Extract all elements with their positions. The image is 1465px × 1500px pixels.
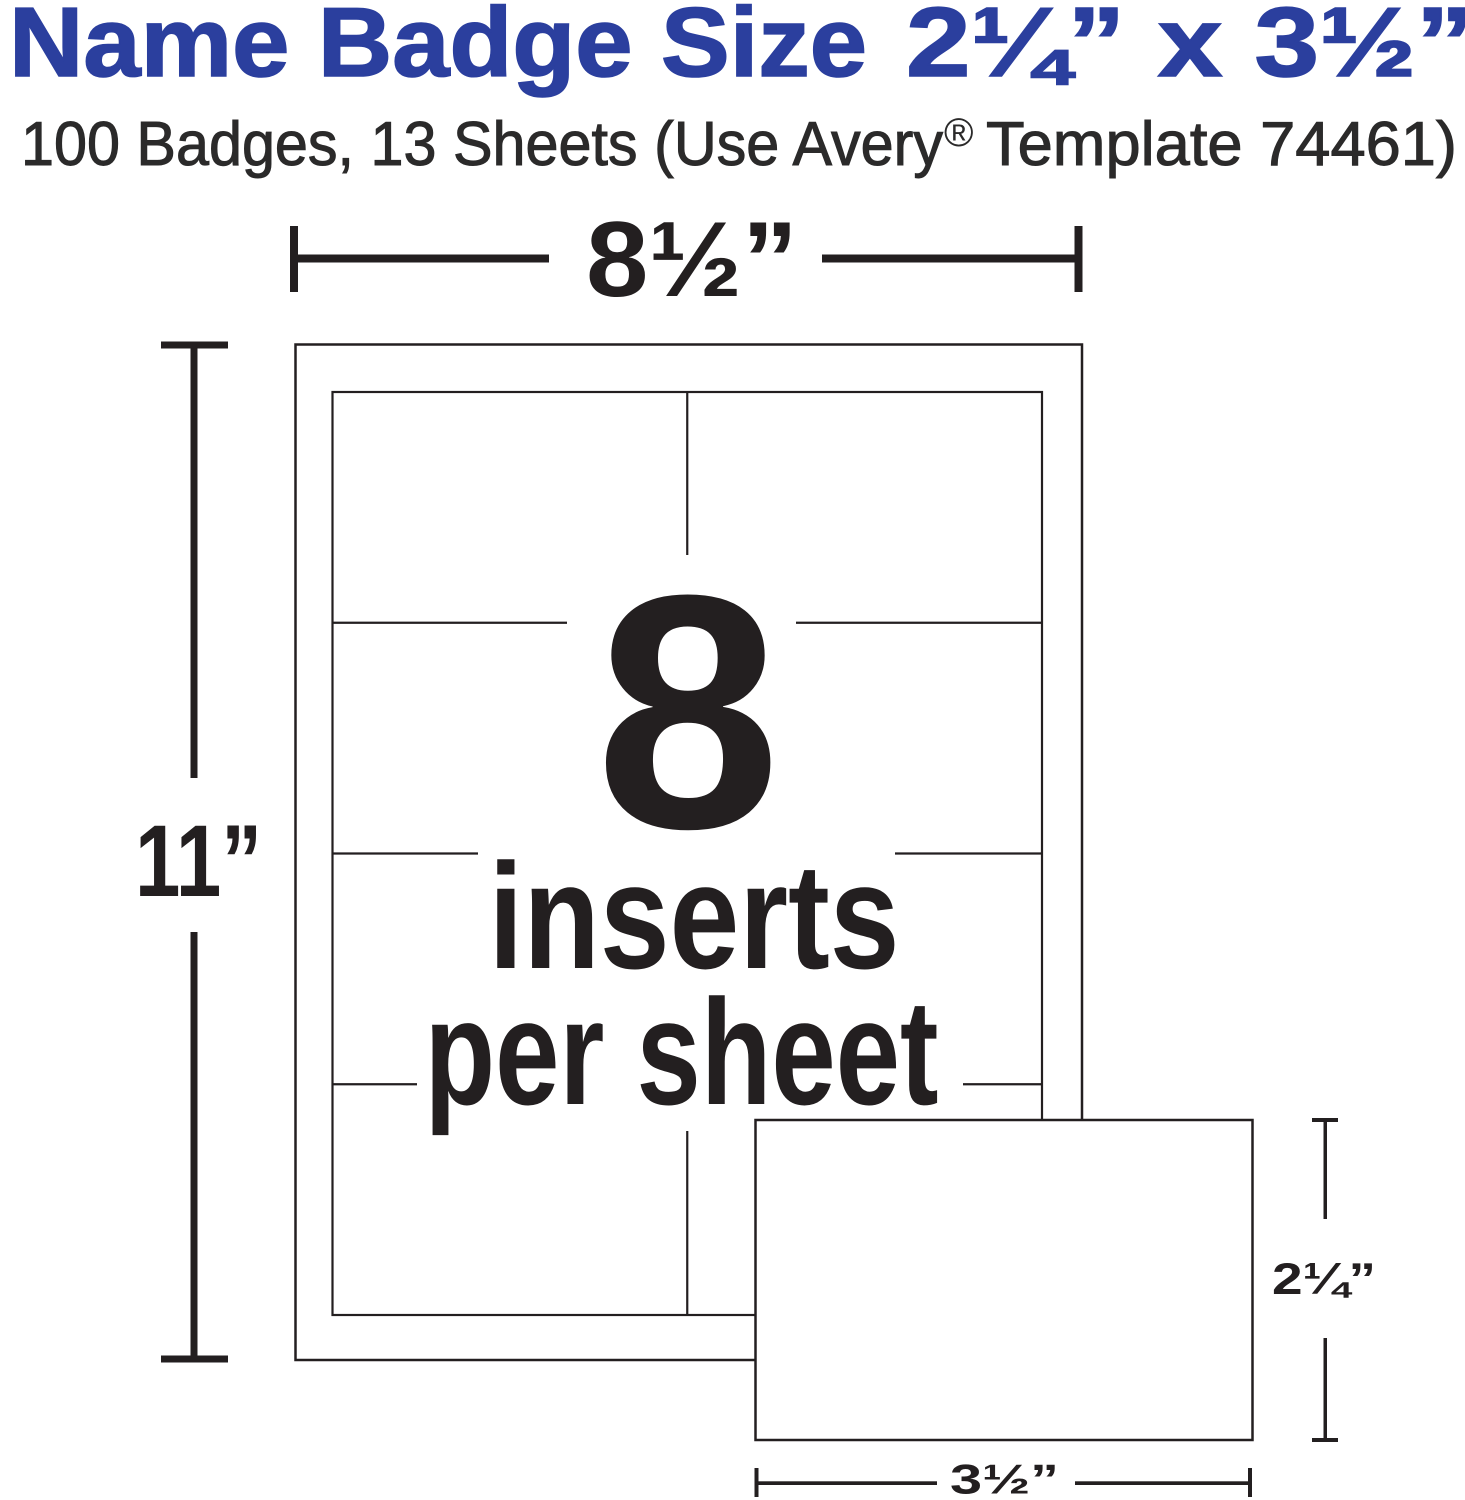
- svg-text:®: ®: [944, 111, 973, 155]
- svg-text:2¼”: 2¼”: [1272, 1255, 1376, 1304]
- svg-text:8½”: 8½”: [586, 199, 798, 319]
- svg-text:Template 74461): Template 74461): [986, 110, 1457, 179]
- svg-text:3½”: 3½”: [950, 1456, 1059, 1500]
- svg-text:2¼” x 3½”: 2¼” x 3½”: [906, 0, 1465, 97]
- svg-text:Name Badge Size: Name Badge Size: [9, 0, 867, 97]
- svg-text:100 Badges, 13 Sheets (Use Ave: 100 Badges, 13 Sheets (Use Avery: [21, 110, 943, 179]
- svg-text:per sheet: per sheet: [425, 968, 939, 1136]
- svg-text:11”: 11”: [135, 804, 262, 918]
